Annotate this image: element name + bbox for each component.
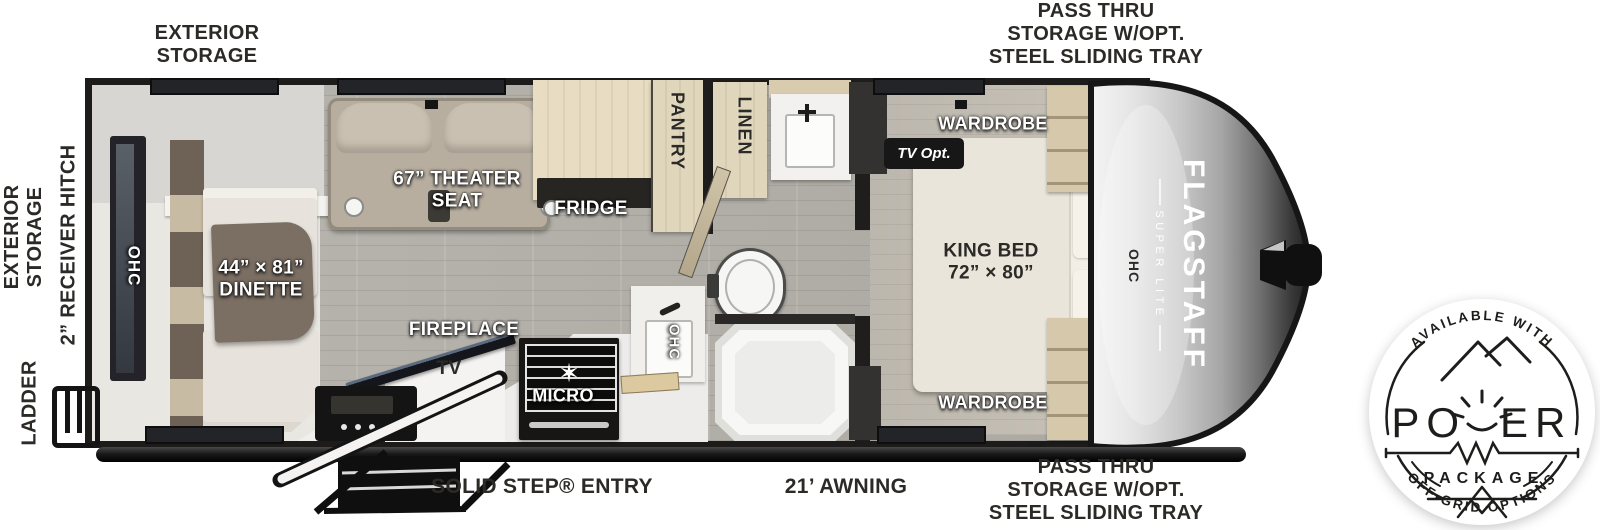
shower-pan: [715, 324, 855, 441]
floorplan-canvas: ✶ TV Opt.: [0, 0, 1600, 530]
label-line: PASS THRU: [989, 456, 1203, 479]
shower-threshold: [715, 314, 855, 324]
label-solid-step-entry: SOLID STEP® ENTRY: [431, 475, 653, 499]
label-theater-seat: 67” THEATER SEAT: [393, 168, 521, 211]
label-dinette: 44” × 81” DINETTE: [218, 257, 304, 300]
label-ohc-rear: OHC: [124, 246, 143, 287]
label-pass-thru-bottom: PASS THRU STORAGE W/OPT. STEEL SLIDING T…: [989, 456, 1203, 524]
label-pass-thru-top: PASS THRU STORAGE W/OPT. STEEL SLIDING T…: [989, 0, 1203, 68]
label-line: 44” × 81”: [218, 257, 304, 279]
label-pantry: PANTRY: [667, 92, 688, 170]
theater-headrest-right: [444, 103, 540, 153]
label-line: 72” × 80”: [943, 262, 1038, 284]
label-line: 67” THEATER: [393, 168, 521, 190]
toilet-hinge: [707, 274, 719, 298]
window-top-rear: [150, 78, 279, 95]
badge-power-right: ER: [1500, 399, 1572, 446]
label-wardrobe-top: WARDROBE: [938, 114, 1047, 135]
window-bottom-dinette: [145, 426, 284, 444]
label-line: STEEL SLIDING TRAY: [989, 45, 1203, 68]
toilet-rim: [725, 259, 775, 315]
label-line: STORAGE W/OPT.: [989, 23, 1203, 46]
label-wardrobe-bottom: WARDROBE: [938, 393, 1047, 414]
label-micro: MICRO: [532, 386, 594, 407]
label-exterior-storage-top: EXTERIOR STORAGE: [155, 22, 260, 68]
badge-package-label: PACKAGE: [1424, 470, 1545, 487]
label-fireplace: FIREPLACE: [409, 319, 519, 341]
label-receiver-hitch: 2” RECEIVER HITCH: [58, 145, 81, 346]
label-line: KING BED: [943, 240, 1038, 262]
ceiling-vent-2: [955, 100, 967, 109]
theater-headrest-left: [336, 103, 432, 153]
label-line: PASS THRU: [989, 0, 1203, 23]
label-exterior-storage-side: EXTERIOR STORAGE: [1, 185, 47, 290]
entry-steps: [268, 358, 520, 526]
label-line: STORAGE W/OPT.: [989, 479, 1203, 502]
label-line: STEEL SLIDING TRAY: [989, 501, 1203, 524]
badge-power-left: PO: [1391, 399, 1466, 446]
ceiling-vent: [425, 100, 438, 109]
oven-handle: [529, 422, 609, 428]
label-line: EXTERIOR: [1, 185, 24, 290]
step-base: [324, 509, 466, 511]
label-ohc-bedroom: OHC: [1125, 249, 1141, 283]
label-line: EXTERIOR: [155, 22, 260, 45]
ladder-hardware: [52, 386, 100, 448]
label-line: DINETTE: [218, 279, 304, 301]
brand-name: FLAGSTAFF: [1177, 159, 1210, 371]
brand-sub: SUPER LITE: [1153, 210, 1165, 319]
vanity-sink-basin: [785, 114, 835, 168]
label-line: SEAT: [393, 190, 521, 212]
window-top-bedroom: [873, 78, 985, 95]
label-line: STORAGE: [155, 45, 260, 68]
dinette-wood-trim: [170, 140, 204, 432]
window-bottom-bedroom: [877, 426, 986, 444]
shower-pan-drainzone: [735, 341, 835, 424]
label-line: STORAGE: [24, 185, 47, 290]
label-fridge: FRIDGE: [554, 198, 628, 220]
vanity-faucet-handle: [798, 110, 816, 114]
label-ohc-kitchen: OHC: [665, 324, 682, 360]
tv-opt-label: TV Opt.: [897, 145, 950, 162]
wardrobe-dark-top: [849, 82, 887, 174]
window-top-theater: [337, 78, 506, 95]
label-ladder: LADDER: [19, 360, 42, 445]
label-linen: LINEN: [734, 97, 755, 156]
label-king-bed: KING BED 72” × 80”: [943, 240, 1038, 283]
label-tv: TV: [437, 358, 462, 380]
tv-opt-badge: TV Opt.: [884, 138, 964, 169]
ladder-rung-2: [77, 391, 82, 433]
power-package-badge: AVAILABLE WITH PO ER PACKAGE OFF-GRID OP…: [1366, 296, 1598, 528]
ladder-rung-1: [65, 391, 70, 433]
hitch-coupler: [1284, 244, 1322, 286]
label-awning: 21’ AWNING: [785, 475, 907, 499]
cupholder-left: [344, 197, 364, 217]
